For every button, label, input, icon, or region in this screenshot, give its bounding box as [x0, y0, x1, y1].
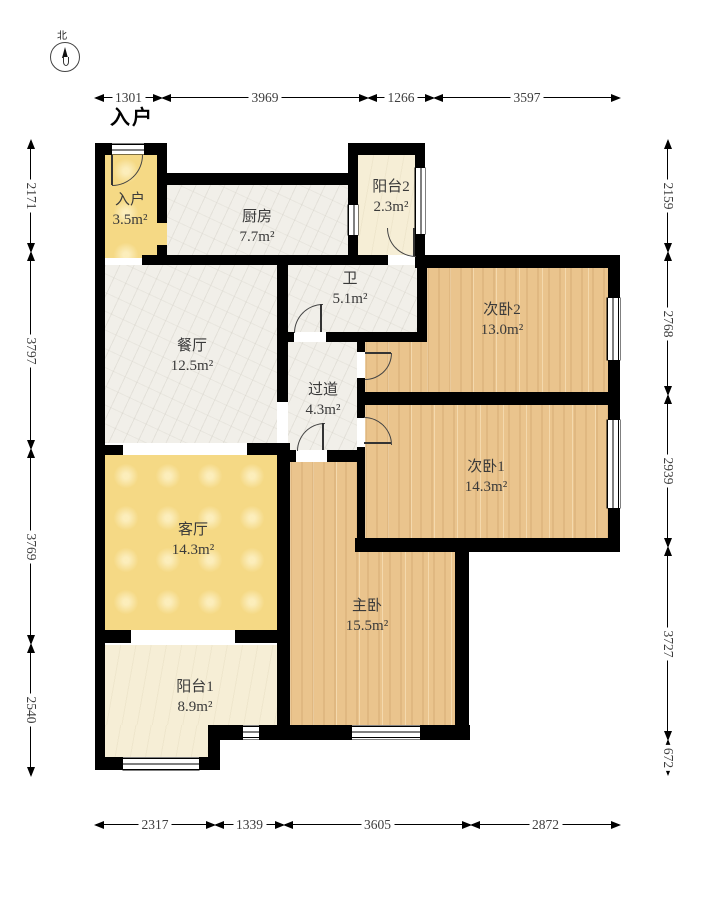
wall-segment [357, 447, 365, 552]
door-leaf [365, 352, 391, 354]
wall-segment [95, 143, 105, 770]
room-label-dining: 餐厅 12.5m² [171, 336, 213, 376]
room-label-living: 客厅 14.3m² [172, 520, 214, 560]
wall-segment [277, 332, 294, 342]
dimension-bottom-4: 2872 [471, 818, 620, 831]
door-leaf [364, 442, 391, 444]
dimension-bottom-2: 1339 [215, 818, 284, 831]
window-symbol [243, 726, 259, 739]
wall-segment [348, 143, 425, 155]
wall-segment [415, 143, 425, 168]
room-label-balcony2: 阳台2 2.3m² [372, 177, 410, 217]
door-leaf [322, 423, 324, 450]
window-symbol [415, 168, 425, 234]
wall-segment [355, 538, 620, 552]
window-symbol [348, 205, 358, 235]
room-label-bathroom: 卫 5.1m² [333, 269, 368, 309]
wall-segment [199, 757, 220, 770]
door-leaf [111, 155, 113, 185]
wall-segment [235, 630, 290, 643]
wall-segment [417, 255, 427, 342]
wall-segment [259, 725, 352, 740]
wall-segment [608, 260, 620, 298]
room-label-master: 主卧 15.5m² [346, 596, 388, 636]
wall-segment [326, 332, 427, 342]
wall-segment [95, 757, 123, 770]
door-leaf [413, 228, 415, 256]
dimension-top-4: 3597 [434, 91, 620, 104]
dimension-bottom-3: 3605 [284, 818, 471, 831]
dimension-bottom-1: 2317 [95, 818, 215, 831]
room-balcony1-floor-ext [105, 725, 208, 757]
wall-segment [277, 443, 290, 727]
wall-segment [327, 450, 365, 462]
room-label-bedroom1: 次卧1 14.3m² [465, 457, 507, 497]
wall-segment [142, 255, 388, 265]
window-symbol [607, 420, 620, 508]
floorplan-canvas: 北 入户 [0, 0, 706, 919]
wall-segment [277, 342, 288, 402]
window-symbol [607, 298, 620, 360]
wall-segment [95, 445, 123, 455]
dimension-top-2: 3969 [162, 91, 368, 104]
compass-needle-tail-icon [63, 57, 70, 66]
dimension-left-4: 2540 [24, 644, 37, 776]
room-label-kitchen: 厨房 7.7m² [240, 207, 275, 247]
wall-segment [357, 392, 620, 405]
room-entry-doorway-floor [157, 223, 167, 245]
compass-north-label: 北 [57, 27, 67, 42]
door-leaf [320, 304, 322, 332]
dimension-right-1: 2159 [661, 140, 674, 252]
window-symbol [352, 726, 420, 739]
room-master-floor [290, 552, 455, 725]
wall-segment [277, 255, 288, 332]
dimension-left-1: 2171 [24, 140, 37, 252]
dimension-left-3: 3769 [24, 449, 37, 644]
dimension-right-4: 3727 [661, 547, 674, 740]
wall-segment [415, 255, 620, 268]
room-label-balcony1: 阳台1 8.9m² [176, 677, 214, 717]
room-label-entry: 入户 3.5m² [113, 190, 148, 230]
wall-segment [455, 538, 469, 740]
wall-segment [95, 630, 131, 643]
wall-segment [348, 155, 358, 205]
dimension-top-1: 1301 [95, 91, 162, 104]
dimension-right-5: 672 [661, 740, 674, 775]
room-label-hallway: 过道 4.3m² [306, 380, 341, 420]
room-label-bedroom2: 次卧2 13.0m² [481, 300, 523, 340]
window-symbol [112, 144, 144, 154]
dimension-right-2: 2768 [661, 252, 674, 395]
dimension-top-3: 1266 [368, 91, 434, 104]
room-master-floor-arm [290, 462, 357, 552]
compass-icon [50, 42, 80, 72]
window-symbol [123, 758, 199, 770]
wall-segment [357, 342, 365, 352]
dimension-left-2: 3797 [24, 252, 37, 449]
wall-segment [277, 450, 296, 462]
wall-segment [420, 725, 470, 740]
dimension-right-3: 2939 [661, 395, 674, 547]
wall-segment [608, 360, 620, 420]
wall-segment [157, 173, 358, 185]
